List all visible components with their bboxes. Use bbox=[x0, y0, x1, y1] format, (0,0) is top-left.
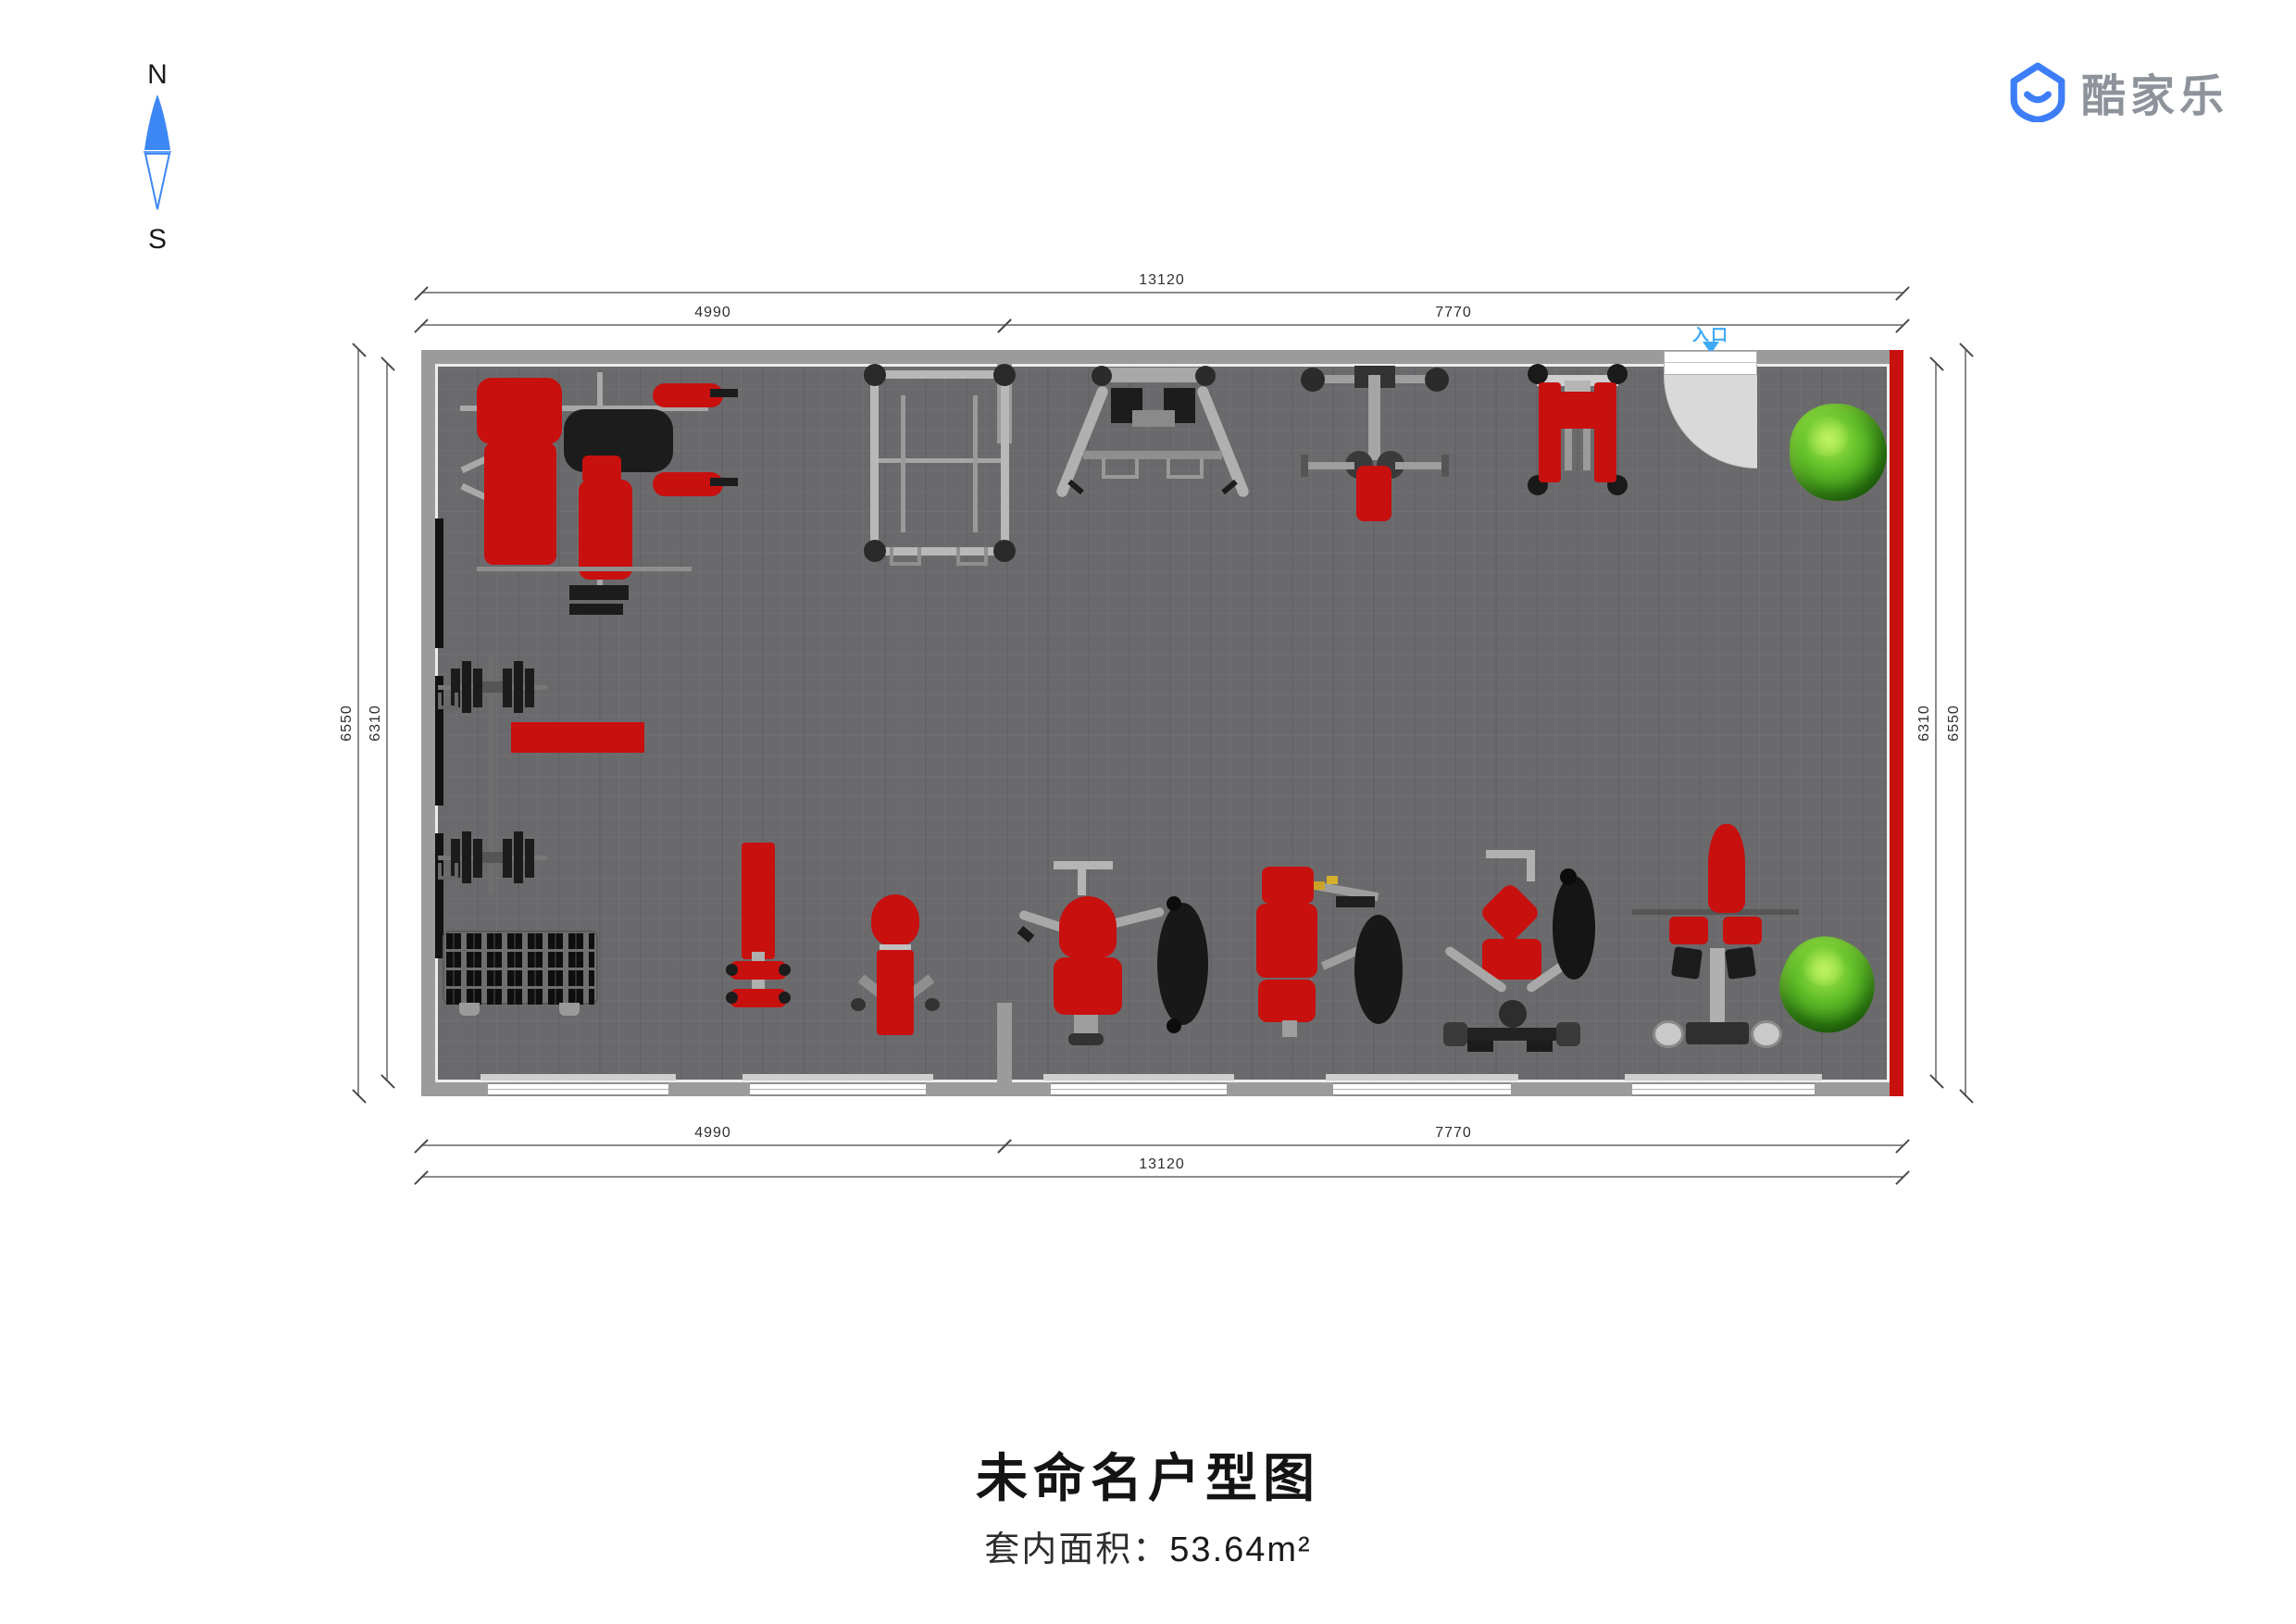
floorplan-title: 未命名户型图 bbox=[0, 1437, 2296, 1512]
gym-floorplan: 入口 bbox=[421, 350, 1903, 1096]
flat-bench bbox=[511, 722, 644, 753]
brand-logo: 酷家乐 bbox=[2007, 59, 2228, 124]
dim-top-left: 4990 bbox=[421, 324, 1004, 326]
wall-rack-strip bbox=[435, 518, 443, 648]
window bbox=[1333, 1082, 1511, 1096]
leg-curl-bench bbox=[730, 843, 787, 1011]
a-frame-machine bbox=[1060, 366, 1245, 506]
dumbbell-rack bbox=[443, 931, 598, 1016]
dim-left-outer: 6550 bbox=[357, 350, 359, 1096]
floorplan-canvas: N S 酷家乐 13120 4990 7770 4990 7770 13120 … bbox=[0, 0, 2296, 1624]
row-machine bbox=[1301, 366, 1449, 523]
dim-bottom-left: 4990 bbox=[421, 1144, 1004, 1146]
dim-top-right: 7770 bbox=[1004, 324, 1903, 326]
wall-right bbox=[1890, 350, 1903, 1096]
compass-south-label: S bbox=[125, 226, 190, 254]
lat-pulldown-machine bbox=[1632, 824, 1799, 1054]
window bbox=[488, 1082, 668, 1096]
utility-bench bbox=[871, 894, 919, 1035]
dim-right-outer: 6550 bbox=[1965, 350, 1966, 1096]
seated-row-machine bbox=[1018, 861, 1208, 1042]
brand-name: 酷家乐 bbox=[2081, 59, 2228, 124]
barbell-area bbox=[438, 644, 669, 906]
compass: N S bbox=[125, 61, 190, 254]
entry-door bbox=[1664, 351, 1757, 375]
dim-bottom-right: 7770 bbox=[1004, 1144, 1903, 1146]
area-text: 套内面积：53.64m² bbox=[0, 1520, 2296, 1571]
window bbox=[750, 1082, 926, 1096]
potted-plant bbox=[1790, 404, 1887, 501]
area-value: 53.64m² bbox=[1169, 1530, 1311, 1569]
leg-press-machine bbox=[1528, 364, 1628, 495]
kujiale-shield-icon bbox=[2007, 61, 2068, 122]
dim-top-outer: 13120 bbox=[421, 292, 1903, 294]
multi-station-gym bbox=[460, 370, 710, 618]
squat-rack bbox=[870, 370, 1009, 556]
partition-stub-bottom bbox=[997, 1003, 1012, 1082]
pec-deck-machine bbox=[1430, 850, 1611, 1054]
area-label: 套内面积： bbox=[984, 1530, 1169, 1569]
chest-press-machine bbox=[1234, 861, 1410, 1028]
window bbox=[1632, 1082, 1815, 1096]
wall-left bbox=[421, 350, 435, 1096]
dim-right-inner: 6310 bbox=[1935, 364, 1937, 1081]
dim-bottom-outer: 13120 bbox=[421, 1176, 1903, 1178]
compass-needle-icon bbox=[139, 93, 176, 222]
window bbox=[1051, 1082, 1227, 1096]
dim-left-inner: 6310 bbox=[386, 364, 388, 1081]
compass-north-label: N bbox=[125, 61, 190, 89]
